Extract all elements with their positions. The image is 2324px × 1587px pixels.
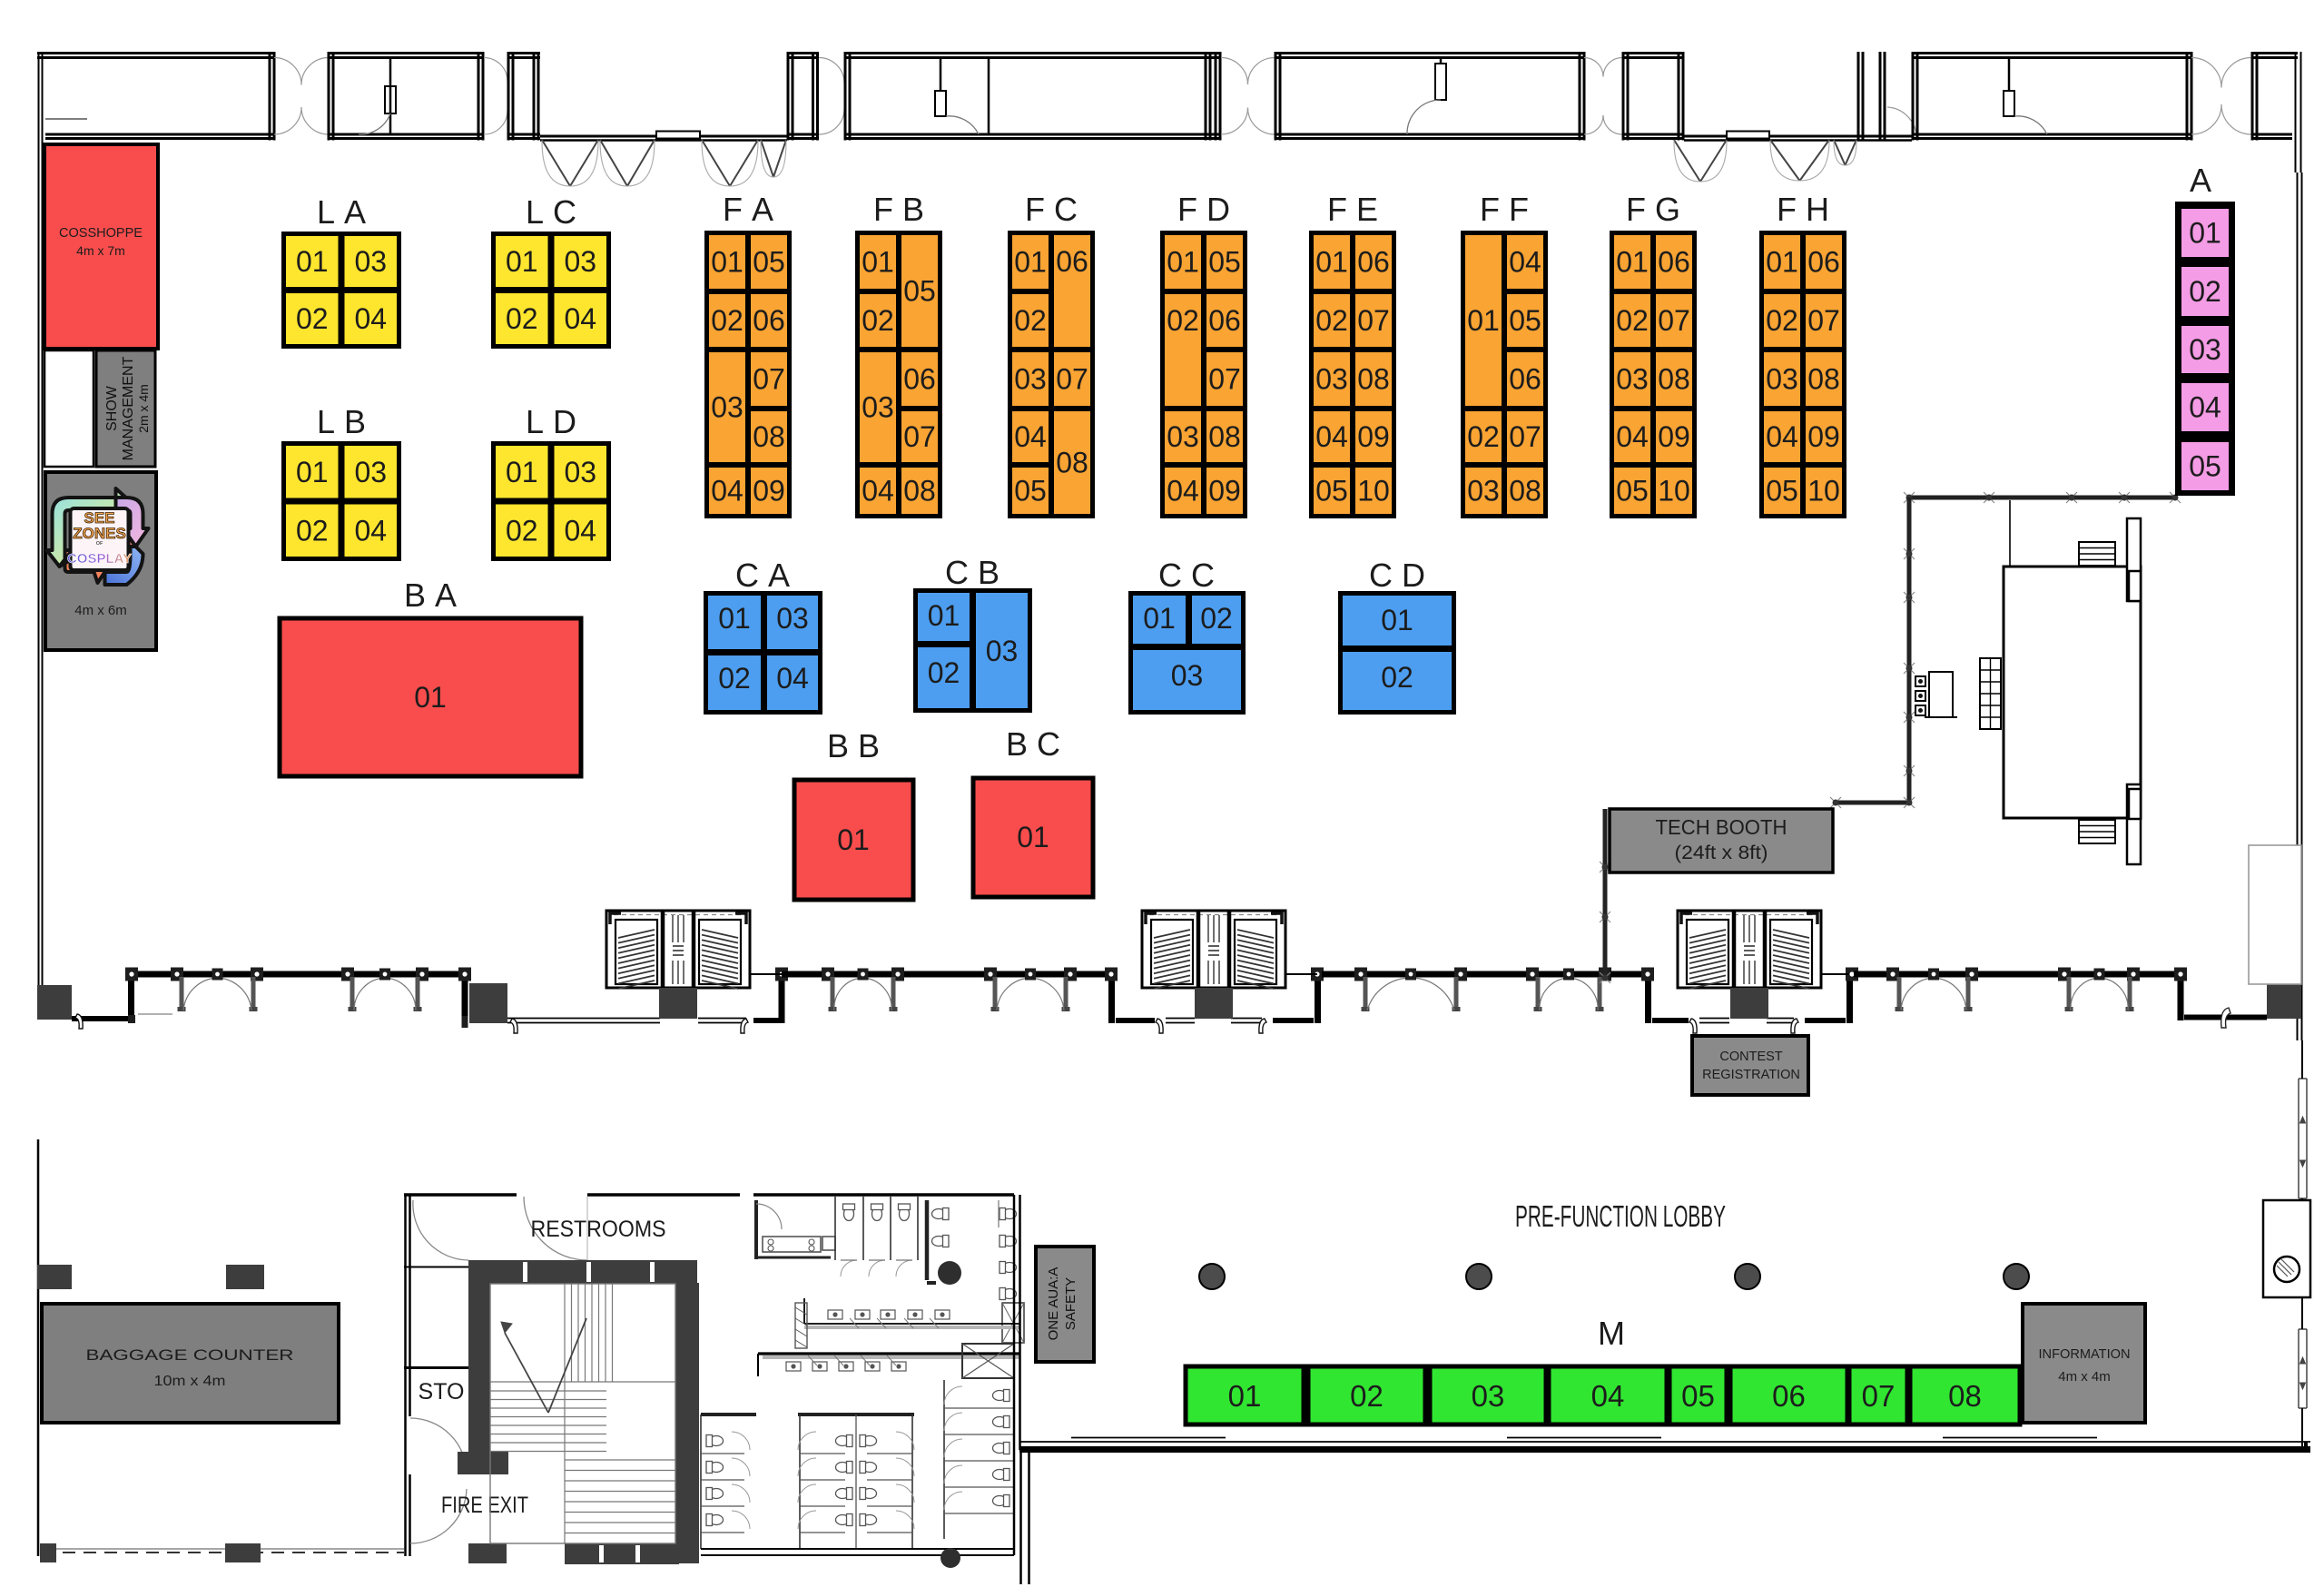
svg-text:CONTEST: CONTEST bbox=[1719, 1050, 1782, 1064]
svg-text:L D: L D bbox=[526, 403, 576, 440]
svg-text:04: 04 bbox=[564, 302, 596, 335]
svg-text:07: 07 bbox=[903, 420, 936, 453]
svg-text:M: M bbox=[1598, 1315, 1625, 1352]
svg-text:04: 04 bbox=[1509, 246, 1541, 279]
svg-text:02: 02 bbox=[1200, 602, 1233, 635]
svg-text:01: 01 bbox=[928, 599, 960, 632]
svg-text:B A: B A bbox=[404, 577, 457, 614]
svg-text:09: 09 bbox=[1357, 420, 1390, 453]
svg-text:05: 05 bbox=[1766, 475, 1798, 508]
svg-text:02: 02 bbox=[1381, 661, 1413, 694]
svg-text:01: 01 bbox=[506, 245, 538, 278]
svg-text:01: 01 bbox=[711, 246, 743, 279]
svg-text:4m x 4m: 4m x 4m bbox=[2058, 1369, 2111, 1385]
svg-text:06: 06 bbox=[1357, 246, 1390, 279]
svg-text:TECH BOOTH: TECH BOOTH bbox=[1656, 815, 1787, 839]
svg-text:06: 06 bbox=[753, 304, 785, 337]
svg-text:(24ft x 8ft): (24ft x 8ft) bbox=[1675, 843, 1768, 863]
svg-text:01: 01 bbox=[296, 245, 329, 278]
svg-text:01: 01 bbox=[862, 246, 894, 279]
svg-text:06: 06 bbox=[1772, 1379, 1806, 1413]
svg-text:04: 04 bbox=[776, 662, 809, 695]
svg-text:05: 05 bbox=[1208, 246, 1241, 279]
svg-text:06: 06 bbox=[1056, 245, 1088, 278]
svg-text:03: 03 bbox=[1472, 1379, 1505, 1413]
svg-text:01: 01 bbox=[837, 823, 870, 856]
svg-text:08: 08 bbox=[1056, 447, 1088, 479]
svg-text:B C: B C bbox=[1006, 725, 1060, 763]
svg-text:COSSHOPPE: COSSHOPPE bbox=[59, 225, 143, 241]
svg-text:04: 04 bbox=[1014, 420, 1047, 453]
svg-text:2m x 4m: 2m x 4m bbox=[136, 384, 151, 433]
svg-text:03: 03 bbox=[564, 245, 596, 278]
svg-text:C D: C D bbox=[1369, 557, 1425, 594]
svg-text:02: 02 bbox=[1766, 304, 1798, 337]
svg-text:01: 01 bbox=[1014, 246, 1047, 279]
svg-text:02: 02 bbox=[1167, 304, 1199, 337]
svg-text:05: 05 bbox=[1681, 1379, 1715, 1413]
svg-text:01: 01 bbox=[1143, 602, 1176, 635]
svg-text:07: 07 bbox=[1509, 420, 1541, 453]
svg-text:02: 02 bbox=[1350, 1379, 1384, 1413]
svg-text:04: 04 bbox=[1167, 475, 1199, 508]
svg-text:REGISTRATION: REGISTRATION bbox=[1702, 1068, 1800, 1082]
svg-text:06: 06 bbox=[903, 363, 936, 396]
svg-text:F G: F G bbox=[1626, 191, 1680, 228]
svg-text:10m x 4m: 10m x 4m bbox=[154, 1374, 226, 1389]
svg-text:06: 06 bbox=[1658, 246, 1690, 279]
svg-text:02: 02 bbox=[862, 304, 894, 337]
svg-text:C B: C B bbox=[945, 554, 1000, 591]
svg-text:A: A bbox=[2190, 162, 2211, 199]
svg-text:F E: F E bbox=[1327, 191, 1378, 228]
svg-text:03: 03 bbox=[1467, 475, 1500, 508]
svg-text:09: 09 bbox=[753, 475, 785, 508]
svg-text:03: 03 bbox=[1315, 363, 1348, 396]
svg-text:03: 03 bbox=[1014, 363, 1047, 396]
svg-text:07: 07 bbox=[1208, 363, 1241, 396]
svg-text:C A: C A bbox=[735, 557, 790, 594]
svg-text:08: 08 bbox=[1357, 363, 1390, 396]
svg-text:03: 03 bbox=[711, 391, 743, 424]
svg-text:07: 07 bbox=[1807, 304, 1840, 337]
svg-text:03: 03 bbox=[1171, 659, 1204, 692]
svg-text:F F: F F bbox=[1480, 191, 1529, 228]
svg-text:B B: B B bbox=[827, 727, 880, 764]
svg-text:02: 02 bbox=[1616, 304, 1649, 337]
svg-text:F D: F D bbox=[1177, 191, 1230, 228]
svg-text:PRE-FUNCTION LOBBY: PRE-FUNCTION LOBBY bbox=[1515, 1199, 1726, 1233]
svg-text:L A: L A bbox=[317, 193, 366, 231]
svg-text:02: 02 bbox=[1467, 420, 1500, 453]
svg-text:05: 05 bbox=[2189, 450, 2221, 483]
svg-text:03: 03 bbox=[1616, 363, 1649, 396]
svg-text:04: 04 bbox=[354, 514, 387, 547]
svg-text:BAGGAGE COUNTER: BAGGAGE COUNTER bbox=[86, 1346, 294, 1364]
svg-text:04: 04 bbox=[354, 302, 387, 335]
svg-text:01: 01 bbox=[414, 681, 447, 714]
svg-text:L C: L C bbox=[526, 193, 576, 231]
svg-text:4m x 6m: 4m x 6m bbox=[74, 603, 127, 618]
svg-text:05: 05 bbox=[753, 246, 785, 279]
svg-text:03: 03 bbox=[2189, 333, 2221, 366]
svg-text:02: 02 bbox=[506, 302, 538, 335]
svg-text:06: 06 bbox=[1807, 246, 1840, 279]
svg-text:05: 05 bbox=[903, 275, 936, 308]
svg-text:F C: F C bbox=[1025, 191, 1078, 228]
svg-text:F H: F H bbox=[1777, 191, 1829, 228]
svg-text:03: 03 bbox=[986, 635, 1019, 667]
svg-text:02: 02 bbox=[296, 514, 329, 547]
svg-text:INFORMATION: INFORMATION bbox=[2039, 1346, 2131, 1362]
svg-text:03: 03 bbox=[564, 456, 596, 488]
svg-text:01: 01 bbox=[1616, 246, 1649, 279]
svg-text:STO: STO bbox=[419, 1379, 465, 1405]
svg-text:SAFETY: SAFETY bbox=[1063, 1277, 1078, 1330]
svg-text:05: 05 bbox=[1014, 475, 1047, 508]
svg-text:06: 06 bbox=[1509, 363, 1541, 396]
svg-text:ZONES: ZONES bbox=[73, 525, 126, 542]
svg-text:L B: L B bbox=[317, 403, 366, 440]
svg-text:MANAGEMENT: MANAGEMENT bbox=[121, 356, 136, 460]
svg-text:01: 01 bbox=[1228, 1379, 1262, 1413]
svg-text:04: 04 bbox=[564, 514, 596, 547]
svg-text:02: 02 bbox=[2189, 275, 2221, 308]
svg-text:02: 02 bbox=[1315, 304, 1348, 337]
svg-text:01: 01 bbox=[1017, 821, 1049, 853]
svg-text:07: 07 bbox=[1056, 363, 1088, 396]
svg-text:10: 10 bbox=[1807, 475, 1840, 508]
svg-text:07: 07 bbox=[1357, 304, 1390, 337]
svg-text:SHOW: SHOW bbox=[104, 385, 120, 431]
svg-text:08: 08 bbox=[903, 475, 936, 508]
svg-text:05: 05 bbox=[1509, 304, 1541, 337]
svg-text:01: 01 bbox=[2189, 217, 2221, 250]
svg-text:09: 09 bbox=[1658, 420, 1690, 453]
svg-text:03: 03 bbox=[354, 245, 387, 278]
svg-text:10: 10 bbox=[1357, 475, 1390, 508]
svg-text:03: 03 bbox=[1167, 420, 1199, 453]
svg-text:01: 01 bbox=[1381, 604, 1413, 636]
svg-text:03: 03 bbox=[1766, 363, 1798, 396]
svg-text:09: 09 bbox=[1208, 475, 1241, 508]
svg-text:F B: F B bbox=[873, 191, 924, 228]
svg-text:10: 10 bbox=[1658, 475, 1690, 508]
svg-text:C C: C C bbox=[1158, 557, 1215, 594]
svg-text:04: 04 bbox=[1766, 420, 1798, 453]
svg-text:01: 01 bbox=[1766, 246, 1798, 279]
svg-text:02: 02 bbox=[711, 304, 743, 337]
svg-text:04: 04 bbox=[1616, 420, 1649, 453]
svg-text:04: 04 bbox=[1591, 1379, 1625, 1413]
svg-text:02: 02 bbox=[1014, 304, 1047, 337]
svg-text:07: 07 bbox=[1658, 304, 1690, 337]
svg-text:08: 08 bbox=[1208, 420, 1241, 453]
svg-text:RESTROOMS: RESTROOMS bbox=[531, 1217, 666, 1242]
svg-text:08: 08 bbox=[1807, 363, 1840, 396]
svg-text:FIRE EXIT: FIRE EXIT bbox=[441, 1493, 528, 1518]
svg-text:05: 05 bbox=[1315, 475, 1348, 508]
svg-text:08: 08 bbox=[1509, 475, 1541, 508]
svg-text:04: 04 bbox=[1315, 420, 1348, 453]
svg-text:07: 07 bbox=[1862, 1379, 1896, 1413]
svg-text:02: 02 bbox=[928, 656, 960, 689]
svg-text:01: 01 bbox=[1315, 246, 1348, 279]
svg-text:06: 06 bbox=[1208, 304, 1241, 337]
svg-text:08: 08 bbox=[1948, 1379, 1982, 1413]
svg-text:ONE AUA:A: ONE AUA:A bbox=[1046, 1267, 1061, 1341]
svg-text:4m x 7m: 4m x 7m bbox=[76, 243, 125, 258]
svg-text:F A: F A bbox=[723, 191, 773, 228]
svg-text:03: 03 bbox=[354, 456, 387, 488]
svg-text:01: 01 bbox=[506, 456, 538, 488]
svg-text:01: 01 bbox=[1467, 304, 1500, 337]
svg-text:05: 05 bbox=[1616, 475, 1649, 508]
svg-text:08: 08 bbox=[753, 420, 785, 453]
svg-text:01: 01 bbox=[296, 456, 329, 488]
svg-text:09: 09 bbox=[1807, 420, 1840, 453]
svg-text:03: 03 bbox=[862, 391, 894, 424]
svg-text:04: 04 bbox=[862, 475, 894, 508]
svg-text:02: 02 bbox=[296, 302, 329, 335]
svg-text:01: 01 bbox=[1167, 246, 1199, 279]
svg-text:COSPLAY: COSPLAY bbox=[67, 551, 132, 567]
svg-text:02: 02 bbox=[718, 662, 751, 695]
svg-text:04: 04 bbox=[2189, 391, 2221, 424]
svg-text:04: 04 bbox=[711, 475, 743, 508]
svg-text:08: 08 bbox=[1658, 363, 1690, 396]
svg-text:03: 03 bbox=[776, 602, 809, 635]
svg-text:01: 01 bbox=[718, 602, 751, 635]
svg-text:02: 02 bbox=[506, 514, 538, 547]
svg-text:07: 07 bbox=[753, 363, 785, 396]
svg-text:OF: OF bbox=[96, 541, 103, 547]
